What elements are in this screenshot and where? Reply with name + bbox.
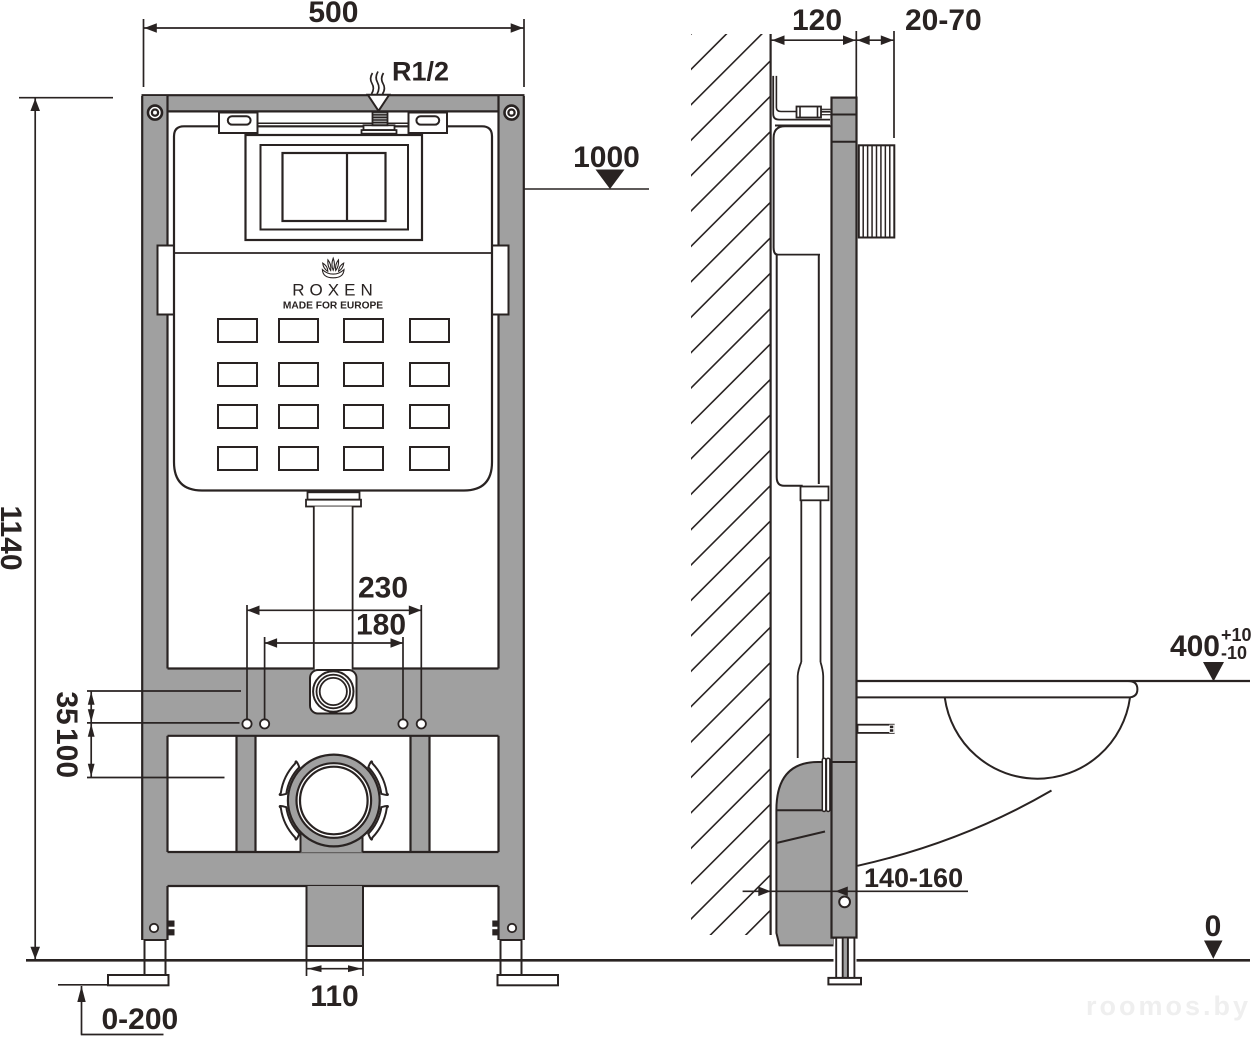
svg-text:120: 120 bbox=[792, 4, 842, 37]
svg-text:140-160: 140-160 bbox=[864, 863, 963, 893]
svg-text:500: 500 bbox=[308, 0, 358, 29]
svg-text:180: 180 bbox=[356, 609, 406, 642]
svg-text:ROXEN: ROXEN bbox=[292, 281, 377, 300]
svg-text:R1/2: R1/2 bbox=[392, 57, 449, 87]
svg-text:-10: -10 bbox=[1221, 643, 1247, 663]
svg-text:1000: 1000 bbox=[573, 141, 640, 174]
svg-text:1140: 1140 bbox=[0, 505, 27, 570]
svg-text:100: 100 bbox=[50, 728, 83, 778]
svg-text:35: 35 bbox=[50, 691, 83, 724]
svg-text:400: 400 bbox=[1170, 630, 1220, 663]
svg-text:0: 0 bbox=[1205, 910, 1222, 943]
svg-text:0-200: 0-200 bbox=[102, 1003, 179, 1036]
svg-text:110: 110 bbox=[310, 980, 358, 1013]
svg-text:+10: +10 bbox=[1221, 625, 1252, 645]
svg-text:MADE FOR EUROPE: MADE FOR EUROPE bbox=[283, 301, 383, 312]
svg-text:230: 230 bbox=[358, 572, 408, 605]
svg-text:roomos.by: roomos.by bbox=[1086, 991, 1251, 1021]
svg-text:20-70: 20-70 bbox=[905, 4, 982, 37]
